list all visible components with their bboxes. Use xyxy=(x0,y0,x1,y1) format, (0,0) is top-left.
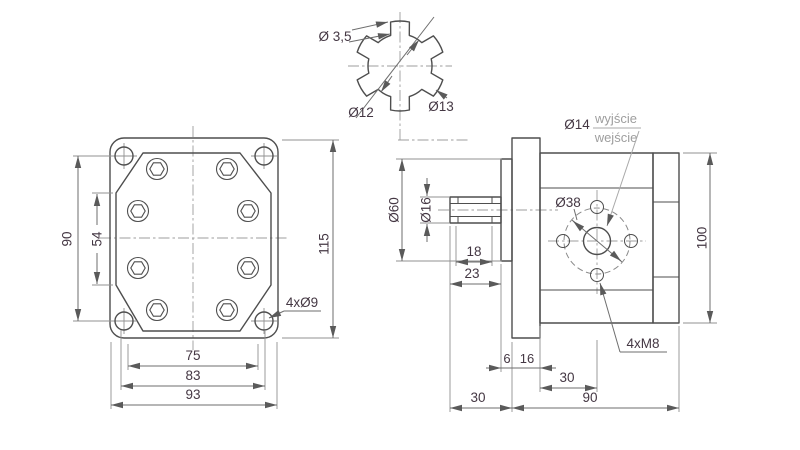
corner-holes-leader-arrow xyxy=(269,311,284,318)
cover-screw xyxy=(217,159,238,180)
dim-label-23: 23 xyxy=(464,266,479,281)
front-center-lines xyxy=(100,126,288,350)
bolt-circle-arrow-2 xyxy=(613,254,621,261)
port-holes-leader xyxy=(600,283,620,352)
side-view: Ø38 Ø14 wyjście wejście 4xM8 100 Ø60 Ø16… xyxy=(387,111,717,412)
mounting-flange xyxy=(512,138,540,338)
tooth-width-leader-1 xyxy=(352,22,388,30)
dim-label-75: 75 xyxy=(185,348,200,363)
spline-center-lines xyxy=(348,12,468,140)
cover-screw xyxy=(217,300,238,321)
cover-screw xyxy=(128,258,149,279)
gear-pump-technical-drawing: 90 54 115 75 83 93 4xØ9 Ø 3,5 Ø12 Ø13 xyxy=(0,0,800,450)
root-diameter-arrow-1 xyxy=(407,40,419,55)
port-diameter-label: Ø14 xyxy=(564,117,590,132)
cover-screw xyxy=(238,201,259,222)
dim-label-54: 54 xyxy=(90,231,105,247)
port-in-label: wejście xyxy=(594,130,638,145)
corner-holes-label: 4xØ9 xyxy=(286,295,318,310)
side-extension-lines xyxy=(396,153,717,412)
dim-label-93: 93 xyxy=(185,387,200,402)
dim-label-90-body: 90 xyxy=(582,390,597,405)
port-holes-label: 4xM8 xyxy=(626,336,659,351)
corner-hole-centermarks xyxy=(111,143,277,334)
tooth-width-label: Ø 3,5 xyxy=(318,29,351,44)
spline-shaft-detail: Ø 3,5 Ø12 Ø13 xyxy=(318,12,468,140)
dim-label-100: 100 xyxy=(695,227,710,250)
dim-label-d16: Ø16 xyxy=(419,197,434,223)
rear-cover xyxy=(653,153,679,323)
drawing-canvas: 90 54 115 75 83 93 4xØ9 Ø 3,5 Ø12 Ø13 xyxy=(0,0,800,450)
bolt-circle-arrow-1 xyxy=(573,221,581,228)
port-out-label: wyjście xyxy=(594,111,637,126)
port-leader xyxy=(607,131,639,226)
dim-label-30-port: 30 xyxy=(559,370,574,385)
root-diameter-label: Ø12 xyxy=(348,105,374,120)
dim-label-90v: 90 xyxy=(60,231,75,246)
dim-label-d60: Ø60 xyxy=(387,197,402,223)
dim-label-6: 6 xyxy=(503,351,510,366)
cover-screw xyxy=(238,258,259,279)
rear-cover-steps xyxy=(653,202,679,277)
cover-screw xyxy=(147,300,168,321)
dim-label-16: 16 xyxy=(520,351,534,366)
bolt-circle-label: Ø38 xyxy=(555,195,581,210)
front-extension-lines xyxy=(73,140,339,409)
outer-diameter-leader xyxy=(436,90,447,98)
cover-screw xyxy=(147,159,168,180)
front-view: 90 54 115 75 83 93 4xØ9 xyxy=(60,126,339,409)
pump-housing-outline xyxy=(116,153,271,331)
dim-label-18: 18 xyxy=(466,244,481,259)
dim-label-115: 115 xyxy=(317,233,332,255)
outer-diameter-label: Ø13 xyxy=(428,99,454,114)
dim-label-30-shaft: 30 xyxy=(470,390,485,405)
cover-screw xyxy=(128,201,149,222)
dim-label-83: 83 xyxy=(185,368,200,383)
